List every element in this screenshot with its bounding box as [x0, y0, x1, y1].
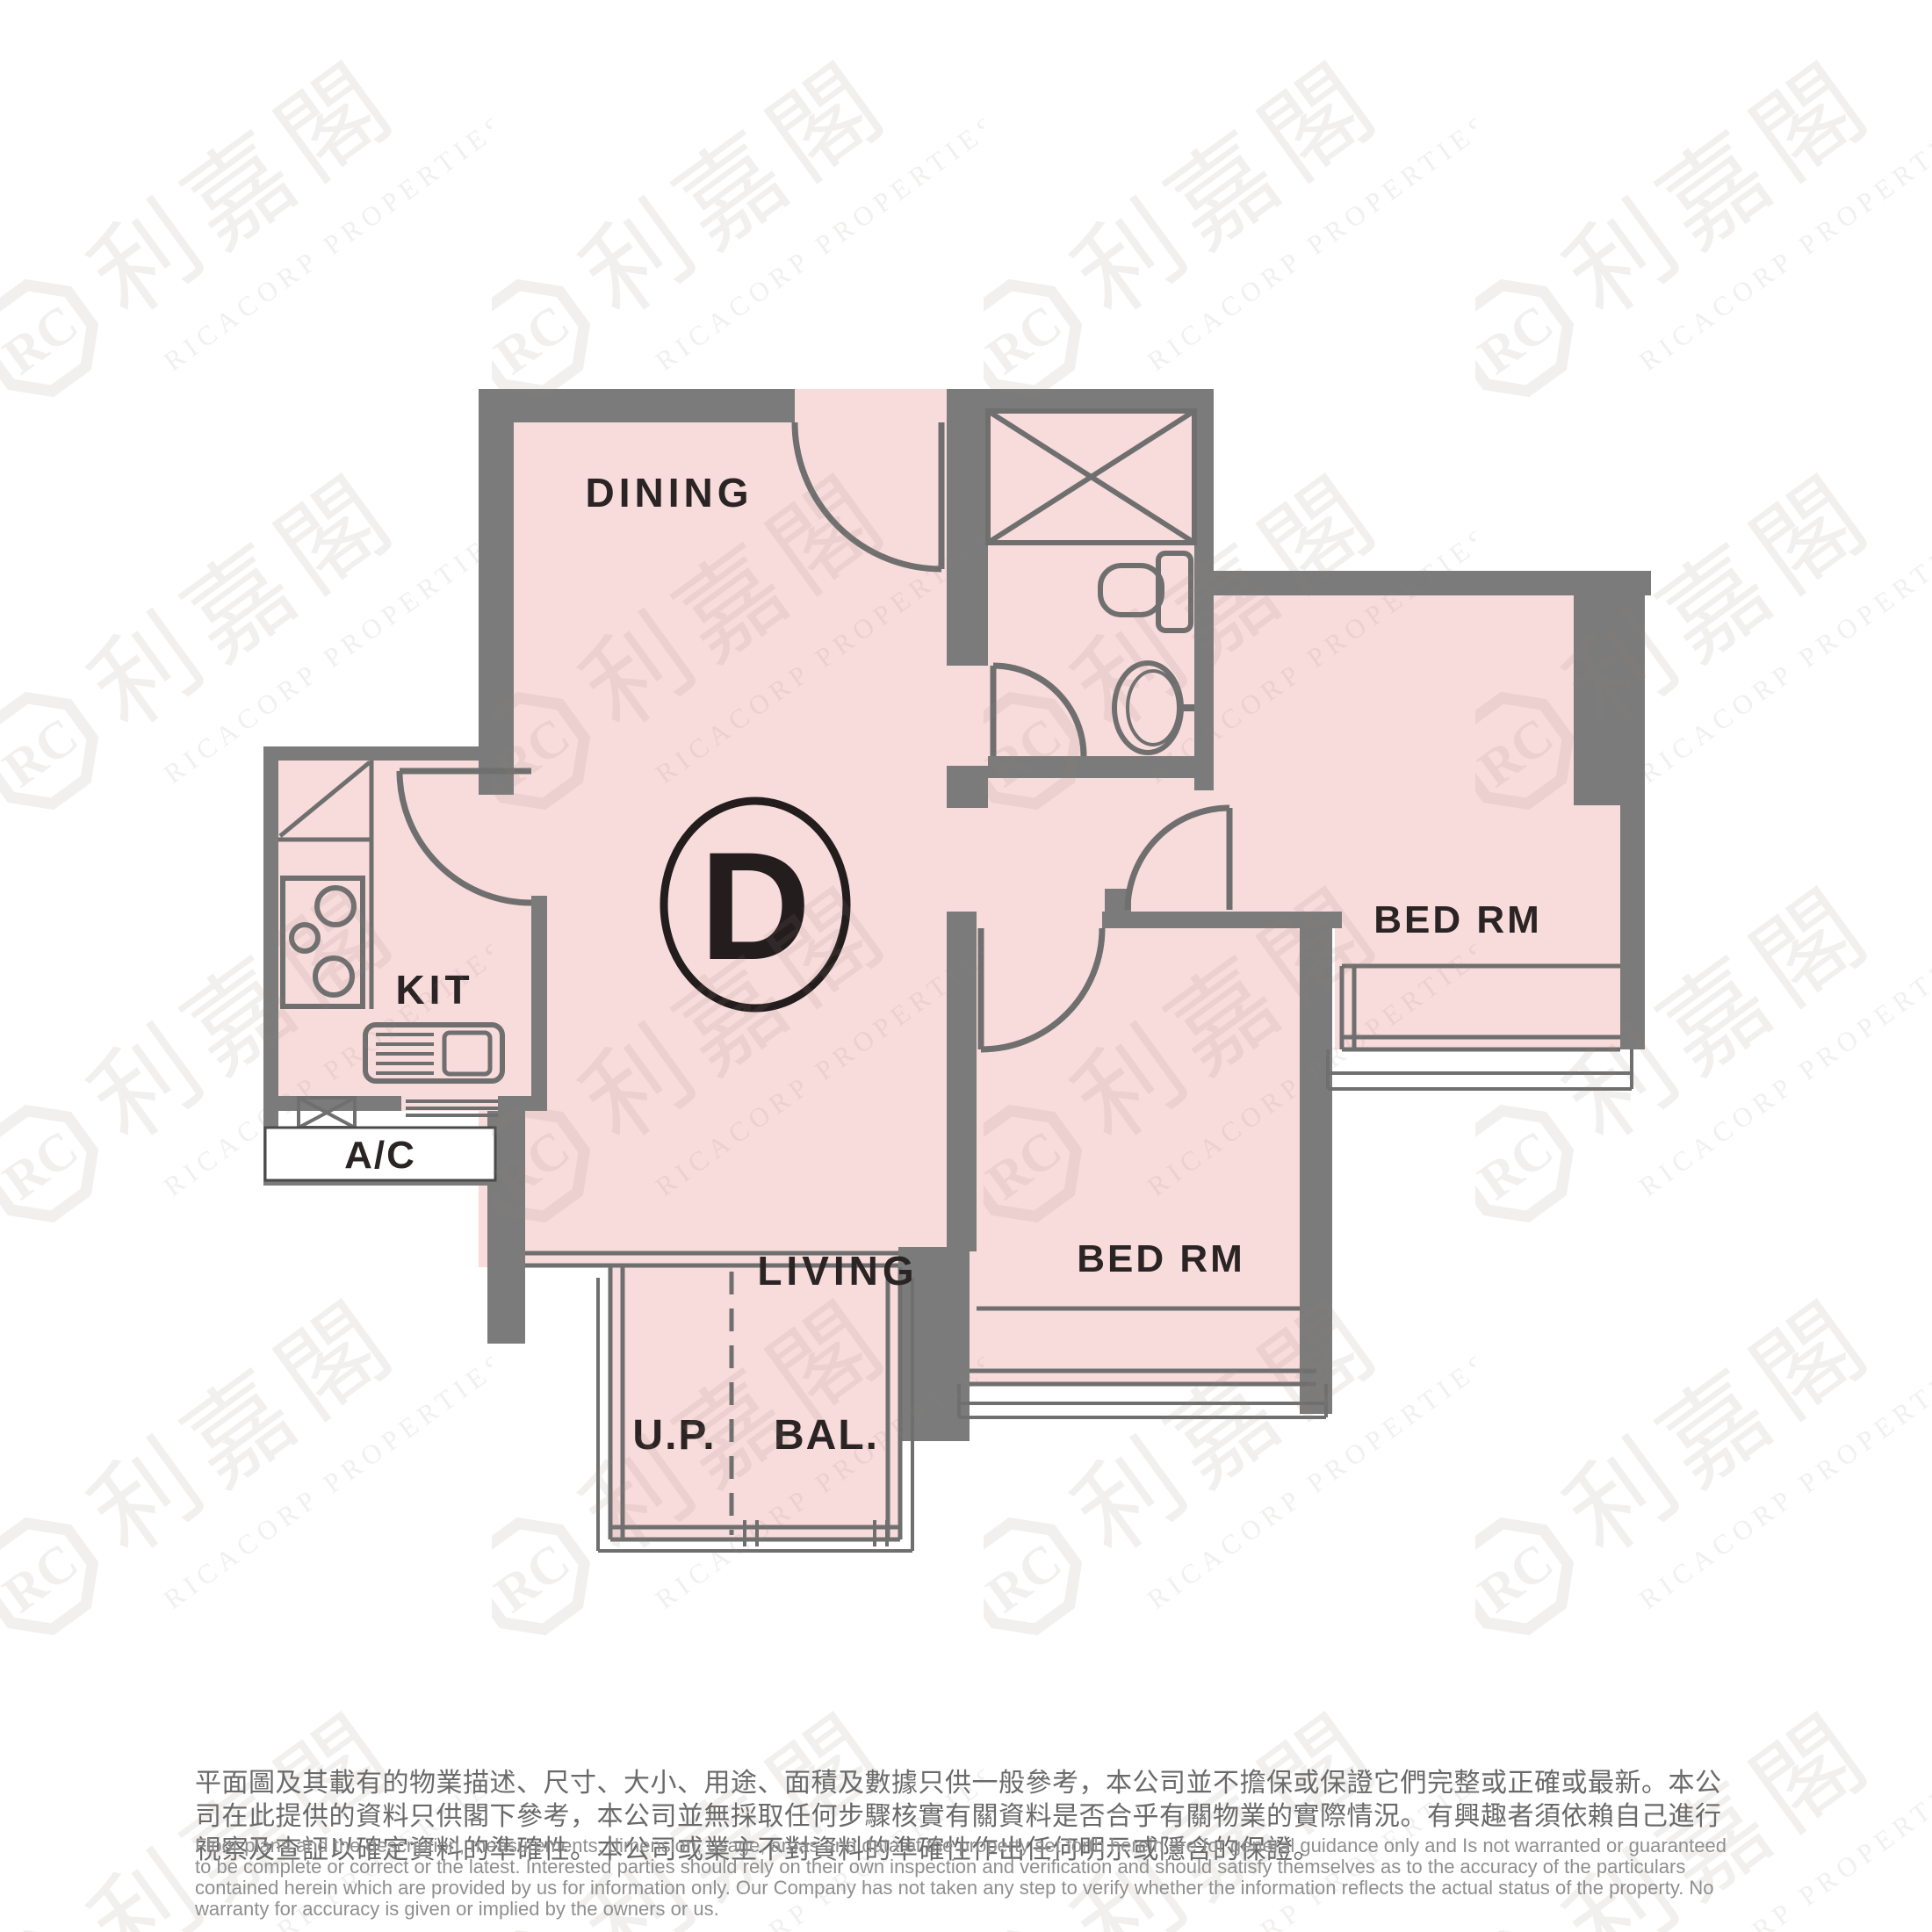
floor-balcony — [609, 1267, 900, 1539]
wall-utility-left-stub — [947, 766, 988, 808]
label-balcony: BAL. — [774, 1412, 879, 1459]
wall-kitchen-right — [531, 896, 547, 1111]
wall-utility-top — [947, 389, 1214, 411]
wall-living-bedroom-divider — [947, 912, 977, 1251]
label-bedroom-top: BED RM — [1373, 898, 1542, 941]
wall-kitchen-bottom-right — [498, 1096, 547, 1111]
label-kitchen: KIT — [395, 967, 473, 1013]
label-bedroom-bottom: BED RM — [1077, 1237, 1245, 1280]
unit-badge-letter: D — [700, 821, 811, 992]
wall-bedroom-top-right-column — [1574, 571, 1645, 805]
wall-bathroom-bottom — [988, 756, 1214, 778]
label-dining: DINING — [586, 470, 753, 515]
ac-label: A/C — [344, 1134, 416, 1177]
wall-kitchen-top — [263, 746, 514, 761]
wall-dining-left — [479, 422, 514, 795]
wall-top — [479, 389, 795, 422]
floorplan-page: A/C D DINING KIT LIVING BED RM BED RM U.… — [0, 0, 1932, 1932]
label-utility-platform: U.P. — [632, 1412, 716, 1459]
wall-utility-left-upper — [947, 411, 988, 666]
floorplan-drawing: A/C D DINING KIT LIVING BED RM BED RM U.… — [0, 0, 1932, 1932]
wall-bedroom-bottom-right — [1300, 912, 1332, 1414]
wall-kitchen-left — [263, 746, 278, 1186]
disclaimer-english: Floor plans and the description, measure… — [195, 1835, 1746, 1920]
ac-platform: A/C — [265, 1128, 495, 1180]
wall-bedroom-top-right-lower — [1620, 805, 1645, 1049]
label-living: LIVING — [757, 1248, 918, 1294]
wall-bedroom-top-left — [1194, 411, 1214, 790]
